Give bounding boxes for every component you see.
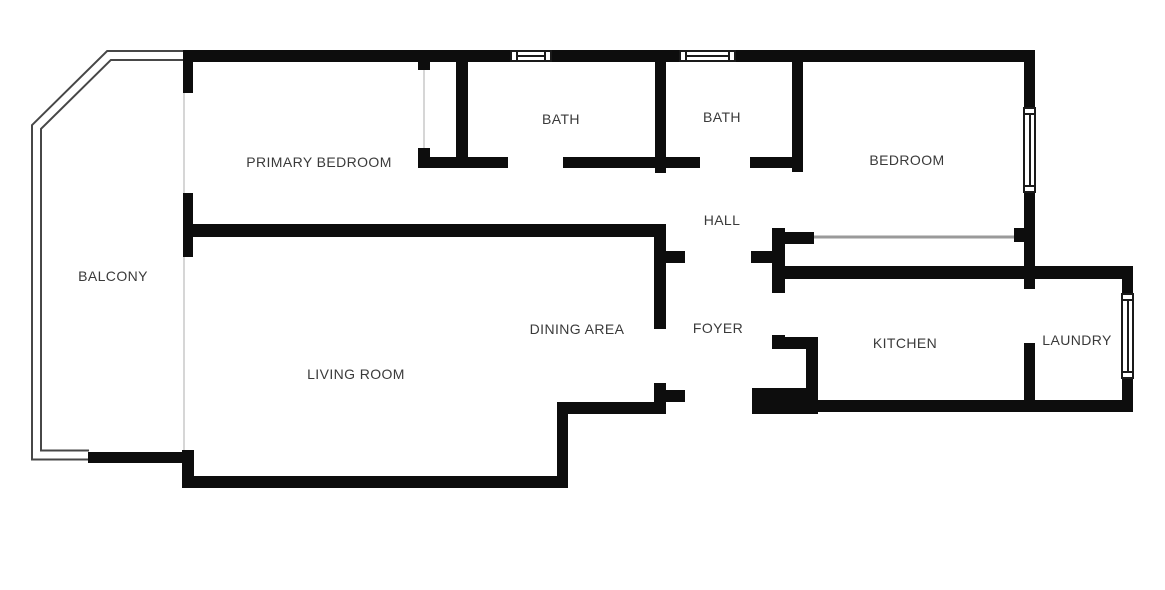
window-pane-line	[1123, 299, 1132, 301]
wall-segment	[666, 390, 685, 402]
room-label-dining-area: DINING AREA	[530, 322, 625, 336]
wall-segment	[736, 50, 1035, 62]
wall-segment	[563, 157, 657, 168]
wall-segment	[751, 251, 772, 263]
wall-segment	[1024, 343, 1035, 402]
wall-segment	[557, 402, 666, 414]
wall-segment	[792, 58, 803, 172]
wall-segment	[183, 50, 193, 93]
balcony-railing-inner	[37, 56, 184, 456]
window-pane-line	[1127, 300, 1129, 372]
wall-segment	[182, 476, 568, 488]
room-label-bedroom: BEDROOM	[869, 153, 944, 167]
room-label-laundry: LAUNDRY	[1042, 333, 1111, 347]
wall-segment	[806, 337, 818, 392]
wall-segment	[772, 335, 785, 349]
wall-segment	[818, 400, 1133, 412]
wall-segment	[193, 224, 654, 237]
window-pane-line	[544, 52, 546, 60]
window-pane-line	[1029, 114, 1031, 186]
window-symbol	[510, 50, 552, 62]
wall-segment	[1024, 50, 1035, 107]
wall-segment	[418, 58, 430, 70]
window-symbol	[1023, 107, 1036, 193]
wall-segment	[456, 58, 468, 168]
room-label-bath-2: BATH	[703, 110, 741, 124]
wall-segment	[1122, 379, 1133, 402]
wall-segment	[1122, 279, 1133, 293]
window-pane-line	[686, 55, 729, 57]
room-label-balcony: BALCONY	[78, 269, 148, 283]
window-symbol	[1121, 293, 1134, 379]
wall-segment	[772, 266, 1133, 279]
window-pane-line	[685, 52, 687, 60]
room-label-foyer: FOYER	[693, 321, 743, 335]
wall-segment	[88, 452, 188, 463]
room-label-primary-bedroom: PRIMARY BEDROOM	[246, 155, 392, 169]
wall-segment	[784, 232, 814, 244]
wall-segment	[666, 251, 685, 263]
room-label-bath-1: BATH	[542, 112, 580, 126]
floorplan-canvas: BALCONYPRIMARY BEDROOMBATHBATHBEDROOMHAL…	[0, 0, 1165, 590]
wall-segment	[655, 58, 666, 173]
room-label-living-room: LIVING ROOM	[307, 367, 405, 381]
window-pane-line	[1025, 113, 1034, 115]
wall-segment	[752, 388, 818, 414]
window-symbol	[679, 50, 736, 62]
wall-segment	[183, 193, 193, 257]
wall-segment	[1024, 279, 1035, 289]
thin-walls-layer	[0, 0, 1165, 590]
wall-segment	[655, 157, 700, 168]
window-pane-line	[1025, 185, 1034, 187]
wall-segment	[750, 157, 793, 168]
room-label-kitchen: KITCHEN	[873, 336, 937, 350]
window-pane-line	[728, 52, 730, 60]
window-pane-line	[517, 55, 545, 57]
window-pane-line	[1123, 371, 1132, 373]
window-pane-line	[516, 52, 518, 60]
balcony-railing-outer	[37, 56, 184, 456]
wall-segment	[1024, 193, 1035, 279]
wall-segment	[654, 224, 666, 329]
room-label-hall: HALL	[704, 213, 741, 227]
